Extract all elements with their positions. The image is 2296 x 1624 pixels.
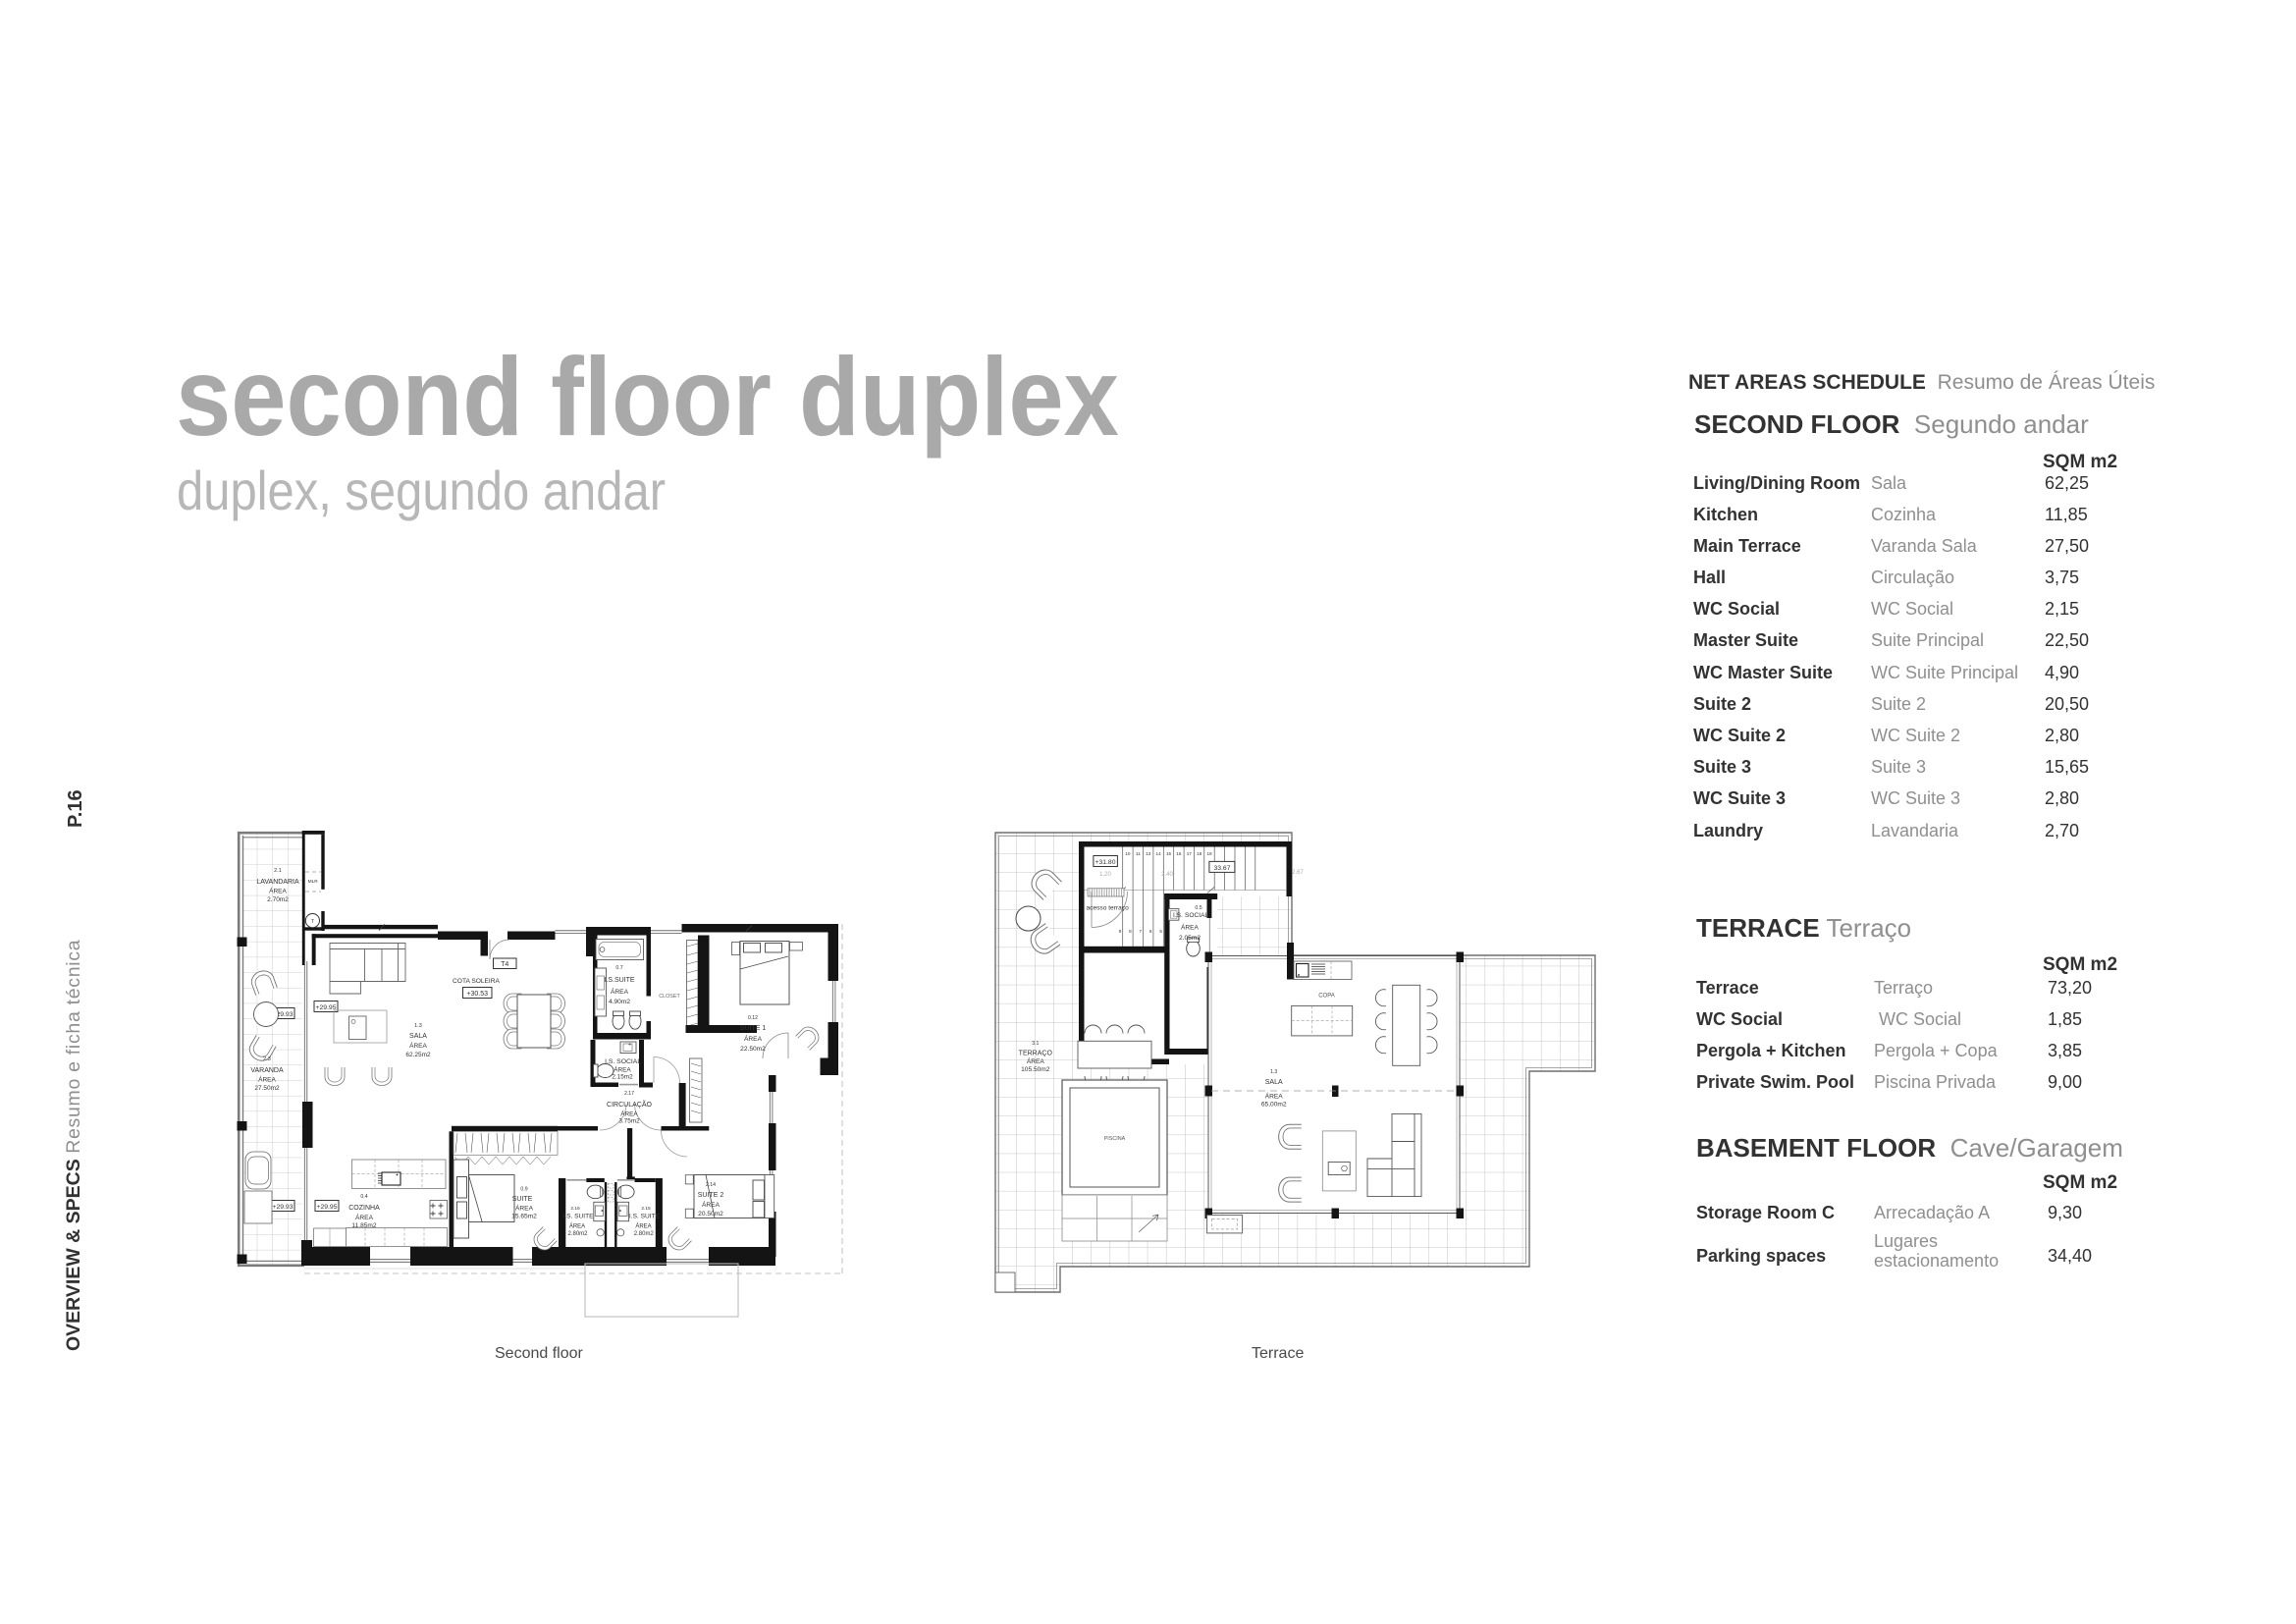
svg-text:VARANDA: VARANDA bbox=[250, 1067, 284, 1074]
svg-text:ÁREA: ÁREA bbox=[635, 1222, 651, 1229]
svg-text:1.20: 1.20 bbox=[1099, 872, 1111, 878]
svg-text:17: 17 bbox=[1187, 851, 1193, 856]
svg-text:CIRCULAÇÃO: CIRCULAÇÃO bbox=[607, 1100, 652, 1109]
svg-text:+29.95: +29.95 bbox=[317, 1204, 338, 1211]
svg-text:I.S.SUITE: I.S.SUITE bbox=[604, 977, 634, 984]
svg-text:ÁREA: ÁREA bbox=[1265, 1092, 1284, 1101]
svg-text:ÁREA: ÁREA bbox=[269, 887, 287, 895]
svg-text:11: 11 bbox=[1136, 851, 1141, 856]
svg-text:15.65m2: 15.65m2 bbox=[511, 1213, 537, 1219]
svg-text:I.S. SUITE: I.S. SUITE bbox=[629, 1213, 661, 1219]
svg-text:T4: T4 bbox=[501, 961, 508, 968]
svg-text:2.67: 2.67 bbox=[1292, 870, 1304, 876]
svg-text:2.3: 2.3 bbox=[263, 1056, 271, 1062]
svg-text:2.05m2: 2.05m2 bbox=[1179, 935, 1201, 942]
svg-text:11.85m2: 11.85m2 bbox=[351, 1222, 377, 1229]
svg-text:ÁREA: ÁREA bbox=[409, 1041, 427, 1050]
svg-text:5: 5 bbox=[1159, 929, 1162, 934]
svg-text:SALA: SALA bbox=[409, 1033, 427, 1040]
svg-text:27.50m2: 27.50m2 bbox=[254, 1085, 280, 1092]
svg-text:6: 6 bbox=[1149, 929, 1152, 934]
svg-text:19: 19 bbox=[1206, 851, 1212, 856]
svg-text:+31.80: +31.80 bbox=[1095, 859, 1116, 866]
svg-text:9: 9 bbox=[1119, 929, 1122, 934]
svg-text:COZINHA: COZINHA bbox=[348, 1205, 380, 1212]
svg-text:0.12: 0.12 bbox=[748, 1015, 758, 1021]
svg-text:ÁREA: ÁREA bbox=[702, 1200, 721, 1209]
svg-text:3.1: 3.1 bbox=[1032, 1041, 1039, 1047]
svg-text:2.1: 2.1 bbox=[274, 868, 282, 874]
svg-text:SUITE 2: SUITE 2 bbox=[698, 1192, 724, 1199]
svg-text:CLOSET: CLOSET bbox=[659, 994, 680, 1000]
svg-text:ÁREA: ÁREA bbox=[515, 1204, 534, 1213]
svg-text:I.S. SOCIAL: I.S. SOCIAL bbox=[605, 1058, 641, 1065]
svg-text:ÁREA: ÁREA bbox=[614, 1065, 631, 1074]
svg-text:ÁREA: ÁREA bbox=[1027, 1056, 1045, 1065]
svg-text:2.80m2: 2.80m2 bbox=[567, 1231, 588, 1237]
svg-text:acesso terraço: acesso terraço bbox=[1087, 905, 1130, 912]
svg-text:15: 15 bbox=[1166, 851, 1172, 856]
svg-text:+30.53: +30.53 bbox=[466, 991, 488, 998]
svg-text:8: 8 bbox=[1129, 929, 1132, 934]
svg-text:2.70m2: 2.70m2 bbox=[267, 896, 289, 903]
svg-text:LAVANDARIA: LAVANDARIA bbox=[256, 879, 299, 886]
svg-text:3.75m2: 3.75m2 bbox=[618, 1118, 640, 1125]
svg-text:0.7: 0.7 bbox=[615, 965, 622, 971]
svg-text:SUITE 1: SUITE 1 bbox=[740, 1025, 767, 1032]
svg-text:1.3: 1.3 bbox=[414, 1023, 422, 1029]
svg-text:TERRAÇO: TERRAÇO bbox=[1019, 1051, 1053, 1057]
svg-text:65,00m2: 65,00m2 bbox=[1261, 1102, 1287, 1109]
svg-text:2.14: 2.14 bbox=[706, 1182, 716, 1188]
svg-text:2.40: 2.40 bbox=[1161, 872, 1173, 878]
svg-text:ÁREA: ÁREA bbox=[355, 1213, 374, 1221]
svg-text:20.50m2: 20.50m2 bbox=[698, 1211, 723, 1218]
svg-text:0.5: 0.5 bbox=[1195, 905, 1201, 911]
svg-text:0.9: 0.9 bbox=[520, 1187, 527, 1193]
svg-text:13: 13 bbox=[1146, 851, 1151, 856]
svg-text:ÁREA: ÁREA bbox=[1181, 923, 1200, 932]
svg-text:ÁREA: ÁREA bbox=[611, 987, 629, 996]
svg-text:+29.95: +29.95 bbox=[316, 1004, 337, 1011]
svg-text:2.15: 2.15 bbox=[641, 1206, 651, 1212]
svg-text:SUITE: SUITE bbox=[512, 1196, 533, 1203]
svg-text:14: 14 bbox=[1156, 851, 1162, 856]
svg-text:I.S. SUITE: I.S. SUITE bbox=[562, 1213, 594, 1219]
svg-text:4.90m2: 4.90m2 bbox=[609, 999, 630, 1005]
svg-text:+29.93: +29.93 bbox=[273, 1204, 294, 1211]
svg-text:16: 16 bbox=[1176, 851, 1182, 856]
svg-text:33.67: 33.67 bbox=[1213, 865, 1230, 872]
svg-text:62.25m2: 62.25m2 bbox=[405, 1052, 431, 1058]
svg-text:2.15m2: 2.15m2 bbox=[612, 1074, 633, 1081]
svg-text:10: 10 bbox=[1125, 851, 1131, 856]
svg-text:I.S.: I.S. bbox=[1173, 912, 1183, 919]
svg-text:2.17: 2.17 bbox=[624, 1091, 634, 1097]
svg-text:ÁREA: ÁREA bbox=[258, 1075, 276, 1084]
svg-text:COTA SOLEIRA: COTA SOLEIRA bbox=[453, 978, 500, 985]
svg-text:COPA: COPA bbox=[1318, 994, 1335, 1000]
svg-text:105.50m2: 105.50m2 bbox=[1021, 1066, 1050, 1073]
svg-text:ÁREA: ÁREA bbox=[744, 1034, 763, 1043]
svg-text:18: 18 bbox=[1197, 851, 1202, 856]
svg-text:PISCINA: PISCINA bbox=[1104, 1136, 1126, 1142]
svg-text:MLR: MLR bbox=[308, 879, 319, 885]
svg-text:22.50m2: 22.50m2 bbox=[740, 1046, 766, 1053]
svg-text:7: 7 bbox=[1140, 929, 1143, 934]
svg-text:2.80m2: 2.80m2 bbox=[634, 1231, 655, 1237]
svg-text:0.4: 0.4 bbox=[360, 1194, 367, 1200]
svg-text:ÁREA: ÁREA bbox=[620, 1110, 638, 1118]
svg-text:1.3: 1.3 bbox=[1270, 1069, 1277, 1075]
svg-text:SALA: SALA bbox=[1265, 1079, 1283, 1086]
svg-text:ÁREA: ÁREA bbox=[569, 1222, 585, 1229]
svg-text:SOCIAL: SOCIAL bbox=[1185, 912, 1209, 919]
svg-text:2.16: 2.16 bbox=[570, 1206, 580, 1212]
